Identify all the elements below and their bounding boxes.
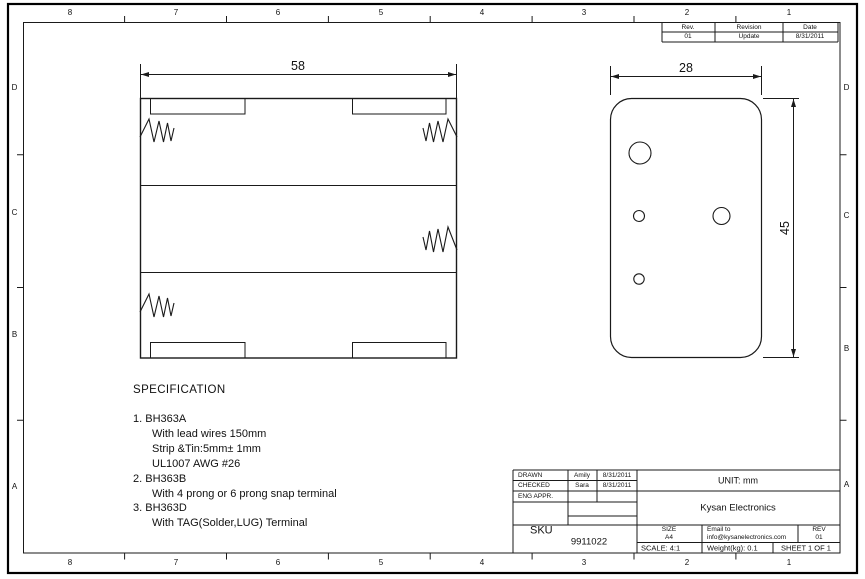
spring-contact-icon: [423, 227, 457, 252]
weight-text: Weight(kg): 0.1: [707, 544, 758, 552]
revision-table-header-date: Date: [803, 24, 817, 31]
front-view-cell-dividers: [141, 186, 457, 273]
sku-label: SKU: [530, 526, 553, 537]
size-label: SIZE: [662, 527, 676, 534]
zone-column-label: 3: [582, 559, 586, 567]
hole-circle: [634, 211, 645, 222]
dimension-side-width-value: 28: [679, 61, 693, 75]
specification-line: 2. BH363B: [133, 472, 337, 487]
spring-contact-icon: [140, 294, 174, 317]
sku-value: 9911022: [571, 537, 607, 547]
front-view-tab: [151, 99, 246, 115]
specification-line: 3. BH363D: [133, 501, 337, 516]
hole-circle: [634, 274, 644, 284]
zone-column-label: 1: [787, 559, 791, 567]
company-name: Kysan Electronics: [700, 503, 776, 513]
rev-value: 01: [815, 535, 822, 542]
specification-line: With TAG(Solder,LUG) Terminal: [133, 516, 337, 531]
zone-column-label: 4: [480, 559, 484, 567]
revision-table-value-date: 8/31/2011: [796, 34, 824, 41]
specification-title: SPECIFICATION: [133, 384, 337, 396]
spring-contact-icon: [140, 119, 174, 142]
checked-label: CHECKED: [518, 483, 550, 490]
sheet-text: SHEET 1 OF 1: [781, 544, 831, 552]
zone-row-label: D: [12, 84, 18, 92]
email-label: Email to: [707, 527, 730, 534]
specification-line: Strip &Tin:5mm± 1mm: [133, 442, 337, 457]
zone-column-label: 5: [379, 9, 383, 17]
dimension-side-height-value: 45: [778, 221, 792, 235]
zone-row-label: C: [12, 209, 18, 217]
zone-column-label: 8: [68, 9, 72, 17]
zone-row-label: B: [12, 331, 17, 339]
eng-appr-label: ENG APPR.: [518, 493, 553, 500]
drawing-geometry: 58 28 45: [0, 0, 865, 579]
specification-line: With 4 prong or 6 prong snap terminal: [133, 487, 337, 502]
zone-row-label: B: [844, 345, 849, 353]
drawn-name: Amily: [574, 472, 590, 479]
title-block-grid: [513, 470, 840, 553]
side-view-outline: [611, 99, 762, 358]
zone-column-label: 4: [480, 9, 484, 17]
dimension-front-width-value: 58: [291, 59, 305, 73]
zone-row-label: C: [844, 212, 850, 220]
zone-row-label: D: [844, 84, 850, 92]
drawing-sheet: 58 28 45: [0, 0, 865, 579]
specification-line: With lead wires 150mm: [133, 427, 337, 442]
specification-line: 1. BH363A: [133, 412, 337, 427]
checked-date: 8/31/2011: [603, 483, 631, 490]
zone-column-label: 8: [68, 559, 72, 567]
checked-name: Sara: [575, 483, 589, 490]
specification-line: UL1007 AWG #26: [133, 457, 337, 472]
email-value: info@kysanelectronics.com: [707, 535, 786, 542]
front-view: [140, 99, 457, 359]
zone-column-label: 5: [379, 559, 383, 567]
dimension-side-height: 45: [763, 99, 799, 358]
revision-table-header-revision: Revision: [737, 24, 762, 31]
side-view: [611, 99, 762, 358]
front-view-tab: [353, 99, 447, 115]
unit-text: UNIT: mm: [718, 476, 758, 485]
hole-circle: [629, 142, 651, 164]
front-view-tab: [151, 343, 246, 359]
zone-row-label: A: [12, 483, 17, 491]
zone-column-label: 2: [685, 559, 689, 567]
specification-block: SPECIFICATION 1. BH363A With lead wires …: [133, 384, 337, 531]
revision-table-value-revision: Update: [739, 34, 760, 41]
dimension-side-width: 28: [611, 61, 762, 95]
zone-column-label: 7: [174, 9, 178, 17]
front-view-outline: [141, 99, 457, 359]
zone-column-label: 6: [276, 559, 280, 567]
revision-table-value-rev: 01: [684, 34, 691, 41]
zone-column-label: 7: [174, 559, 178, 567]
size-value: A4: [665, 535, 673, 542]
scale-text: SCALE: 4:1: [641, 544, 680, 552]
drawn-date: 8/31/2011: [603, 472, 631, 479]
zone-column-label: 6: [276, 9, 280, 17]
drawn-label: DRAWN: [518, 472, 542, 479]
revision-table-header-rev: Rev.: [682, 24, 695, 31]
zone-column-label: 1: [787, 9, 791, 17]
zone-column-label: 3: [582, 9, 586, 17]
front-view-tab: [353, 343, 447, 359]
zone-row-label: A: [844, 481, 849, 489]
dimension-front-width: 58: [141, 59, 457, 98]
spring-contact-icon: [423, 119, 457, 142]
zone-column-label: 2: [685, 9, 689, 17]
rev-label: REV: [812, 527, 825, 534]
hole-circle: [713, 208, 730, 225]
